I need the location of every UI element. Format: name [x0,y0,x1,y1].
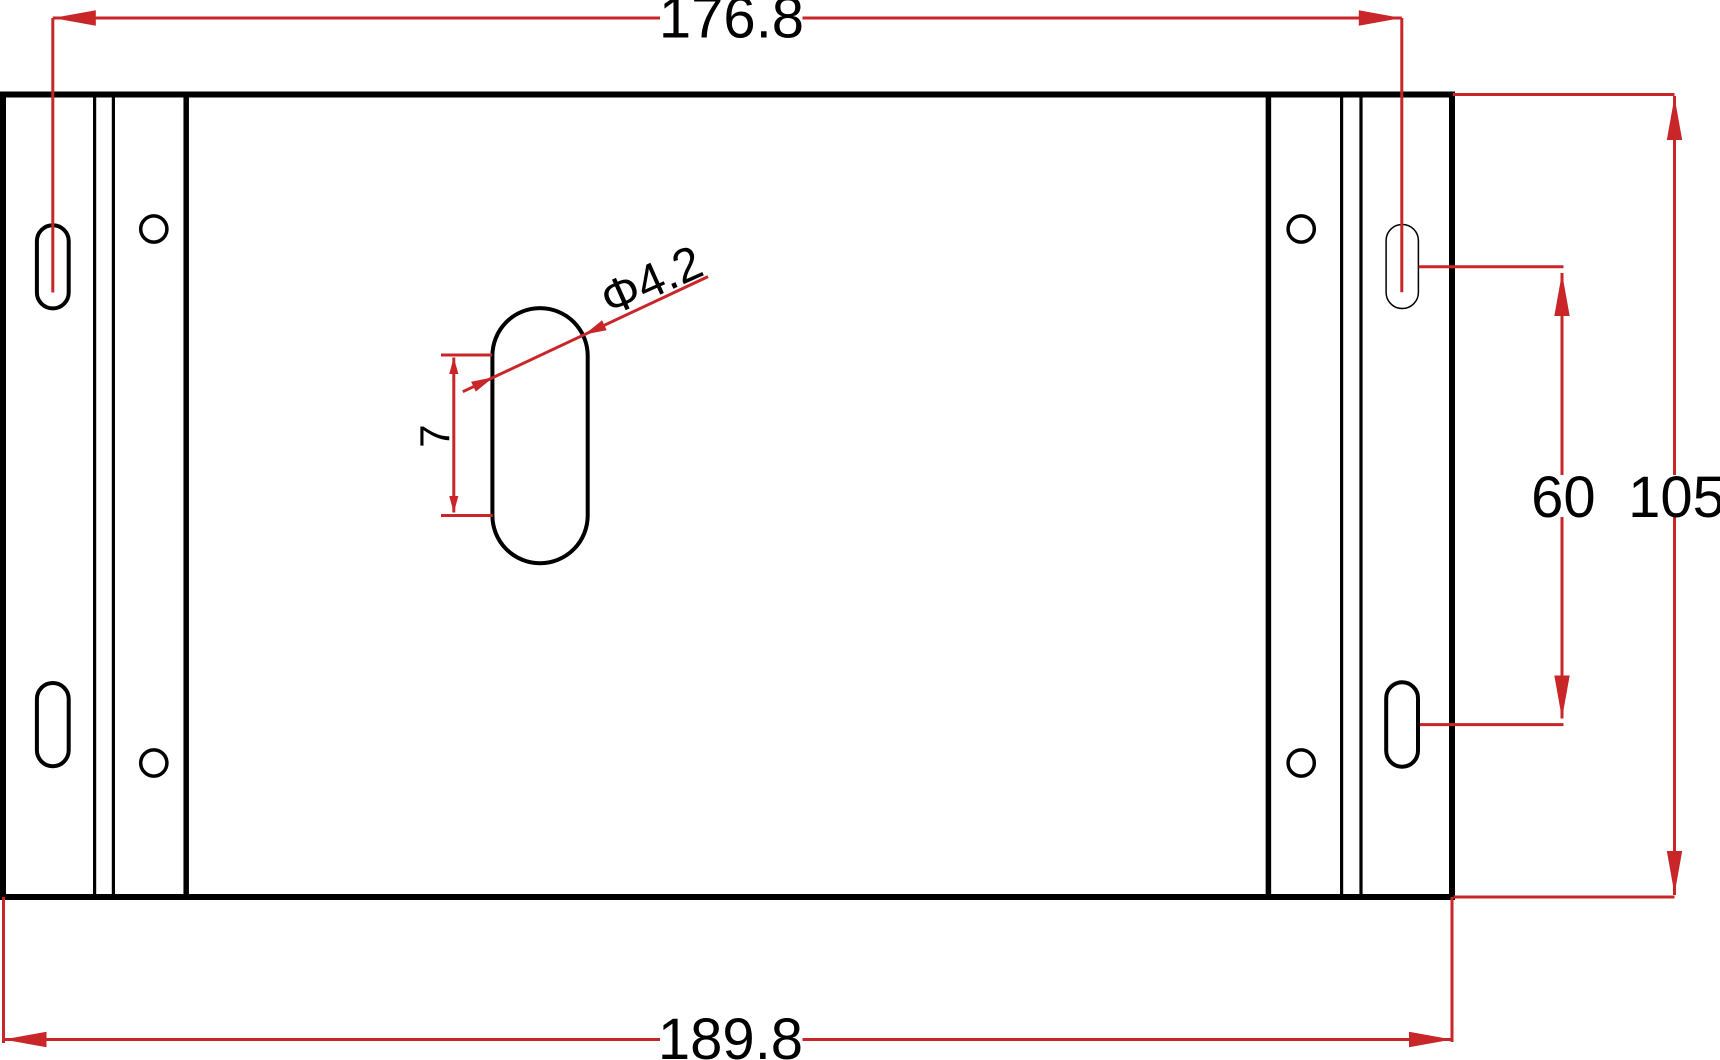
svg-text:60: 60 [1531,465,1596,530]
svg-text:176.8: 176.8 [659,0,804,51]
svg-text:189.8: 189.8 [658,1007,803,1060]
svg-text:Φ4.2: Φ4.2 [593,236,711,327]
svg-text:105: 105 [1628,465,1720,530]
svg-text:7: 7 [411,424,458,447]
